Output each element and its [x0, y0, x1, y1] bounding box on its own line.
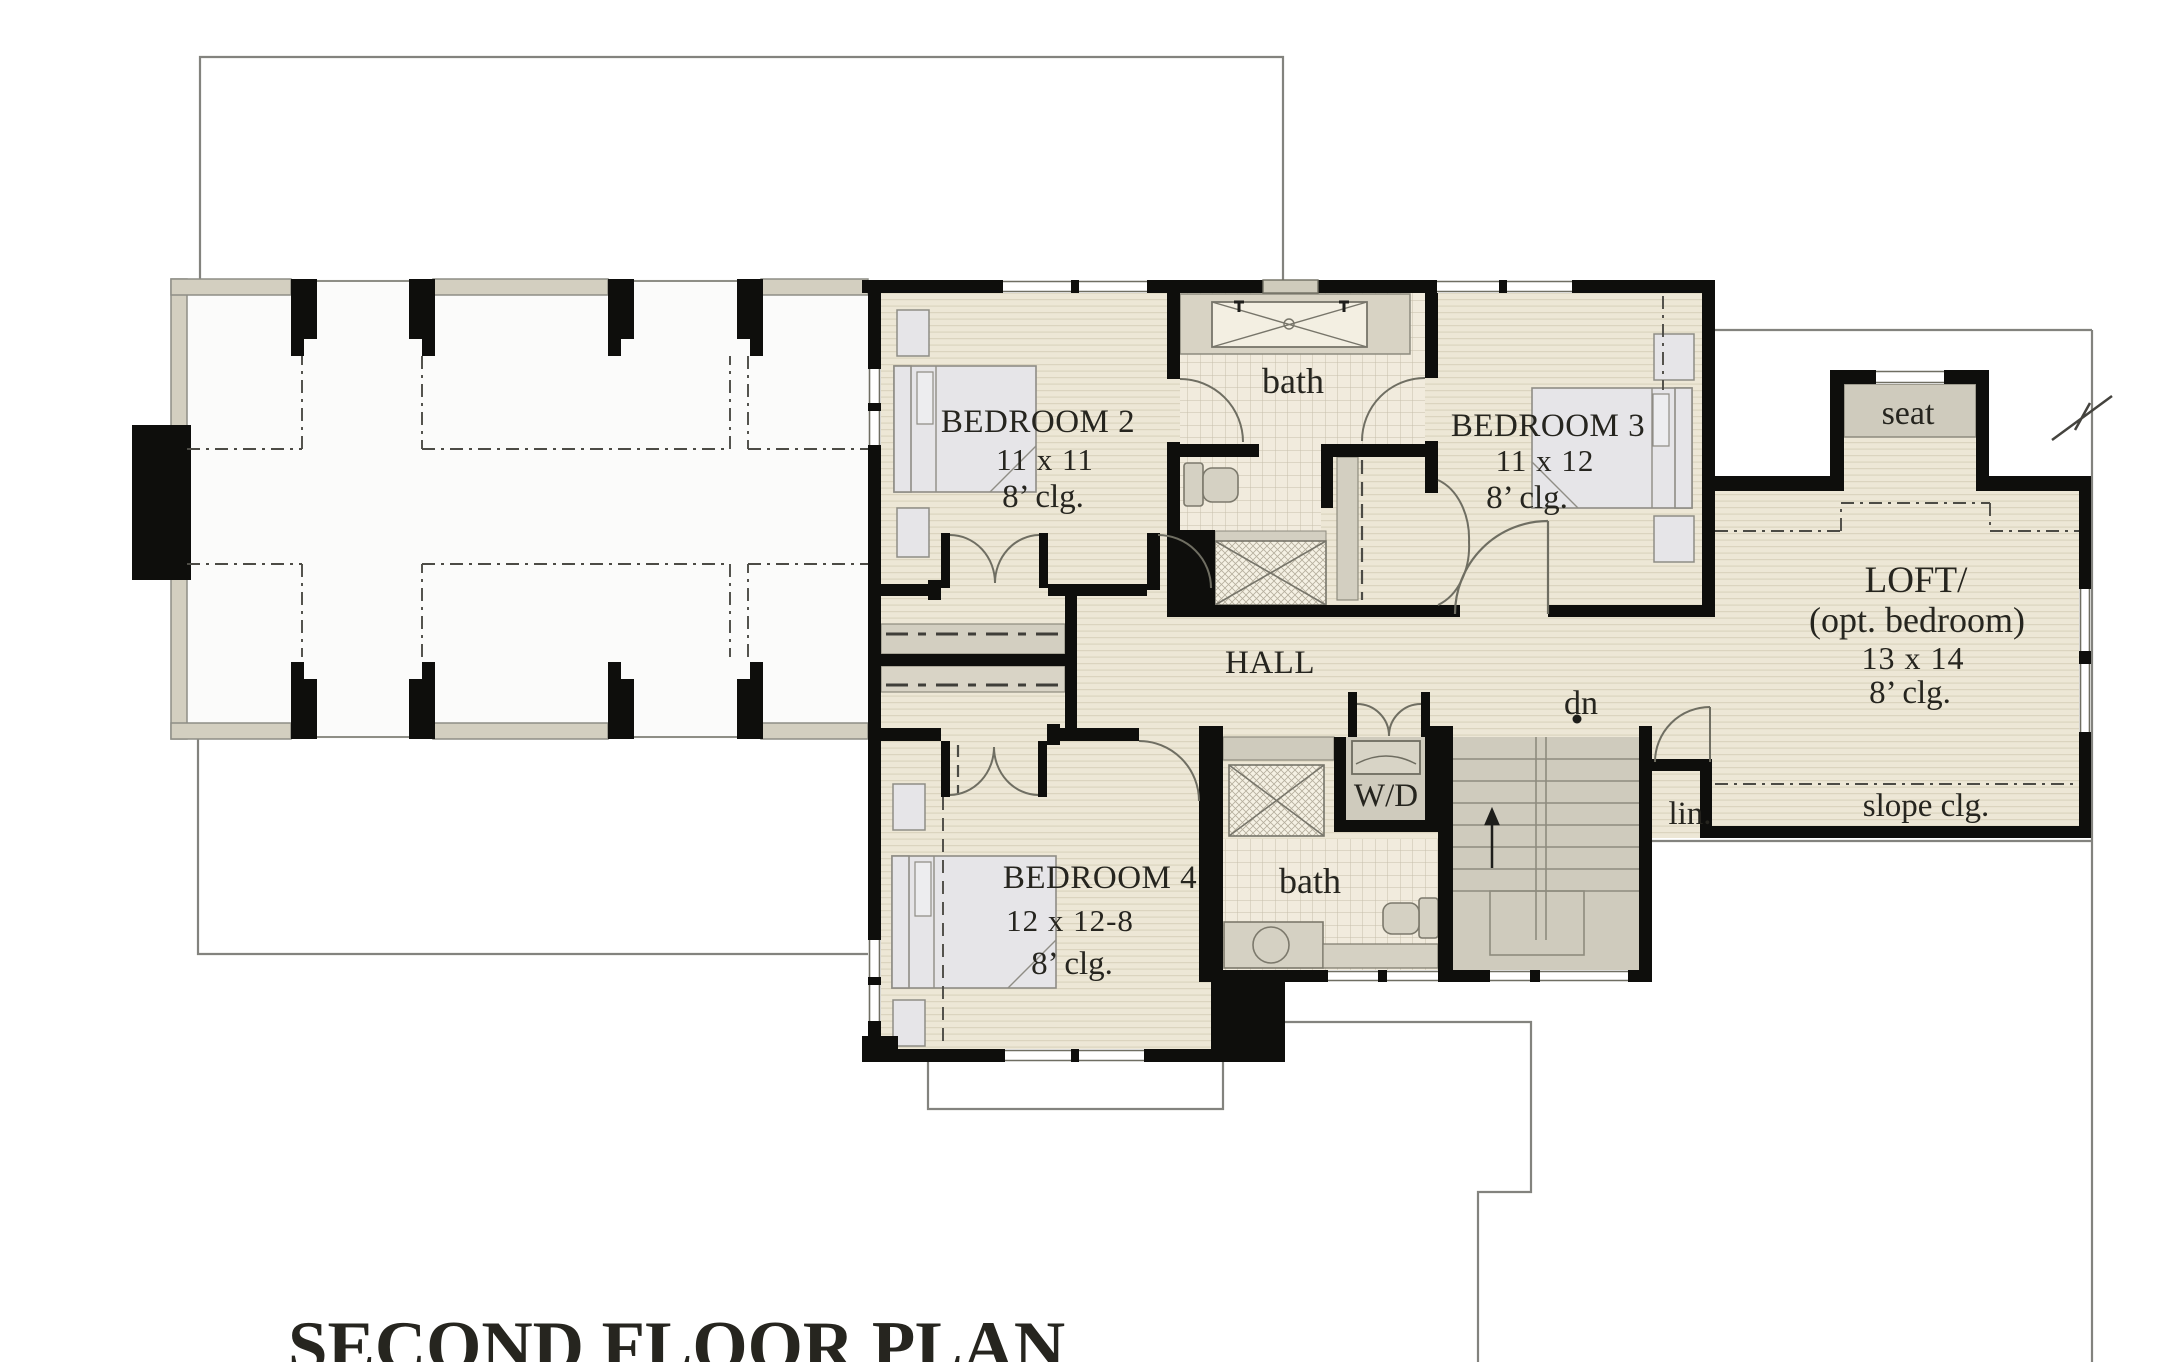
svg-text:(opt. bedroom): (opt. bedroom)	[1809, 600, 2025, 640]
svg-text:slope clg.: slope clg.	[1863, 788, 1989, 824]
svg-text:BEDROOM 3: BEDROOM 3	[1451, 408, 1645, 444]
svg-text:HALL: HALL	[1225, 645, 1315, 681]
svg-text:BEDROOM 4: BEDROOM 4	[1003, 860, 1197, 896]
svg-text:8’ clg.: 8’ clg.	[1869, 675, 1951, 711]
svg-text:8’ clg.: 8’ clg.	[1002, 479, 1084, 515]
svg-text:dn: dn	[1564, 685, 1598, 722]
svg-text:LOFT/: LOFT/	[1865, 560, 1969, 601]
svg-text:11 x 12: 11 x 12	[1496, 443, 1595, 478]
svg-text:8’ clg.: 8’ clg.	[1486, 480, 1568, 516]
svg-text:seat: seat	[1882, 395, 1935, 432]
svg-text:W/D: W/D	[1354, 778, 1418, 814]
svg-text:12 x 12-8: 12 x 12-8	[1006, 903, 1134, 938]
svg-text:11 x 11: 11 x 11	[996, 442, 1094, 477]
svg-text:8’ clg.: 8’ clg.	[1031, 946, 1113, 982]
svg-text:bath: bath	[1262, 361, 1324, 401]
svg-text:bath: bath	[1279, 861, 1341, 901]
svg-text:13 x 14: 13 x 14	[1862, 640, 1965, 676]
svg-text:BEDROOM 2: BEDROOM 2	[941, 404, 1135, 440]
svg-text:SECOND FLOOR PLAN: SECOND FLOOR PLAN	[288, 1308, 1065, 1362]
svg-text:lin.: lin.	[1668, 796, 1711, 832]
